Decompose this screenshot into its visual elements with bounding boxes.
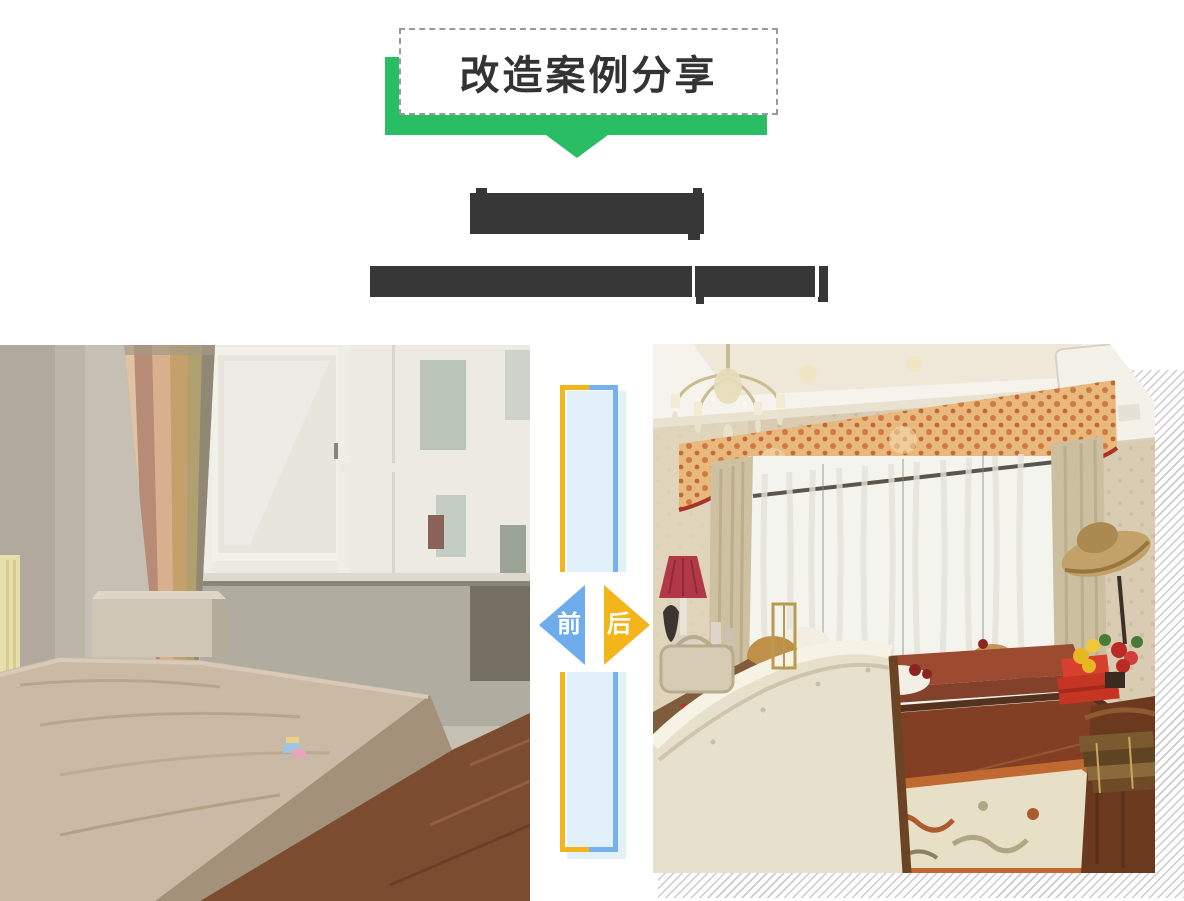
banner-ribbon-pointer	[546, 135, 608, 158]
before-photo-illustration	[0, 345, 530, 901]
page-title: 改造案例分享	[460, 43, 718, 101]
redacted-subheading-gap	[692, 266, 695, 297]
redacted-heading	[470, 193, 704, 234]
redacted-heading-fragment	[693, 188, 702, 193]
page: { "banner": { "title": "改造案例分享", "ribbon…	[0, 0, 1184, 901]
banner-ribbon-bottom	[385, 115, 767, 135]
redacted-subheading-fragment	[696, 297, 704, 304]
after-photo-illustration	[653, 344, 1155, 873]
after-photo	[653, 344, 1155, 873]
banner-title-box: 改造案例分享	[399, 28, 778, 115]
before-photo	[0, 345, 530, 901]
redacted-subheading-fragment	[818, 297, 828, 302]
redacted-heading-fragment	[688, 234, 700, 240]
before-label: 前	[552, 611, 586, 639]
redacted-subheading	[370, 266, 828, 297]
after-label: 后	[602, 611, 636, 639]
redacted-subheading-gap	[815, 266, 819, 297]
redacted-heading-fragment	[476, 188, 487, 193]
